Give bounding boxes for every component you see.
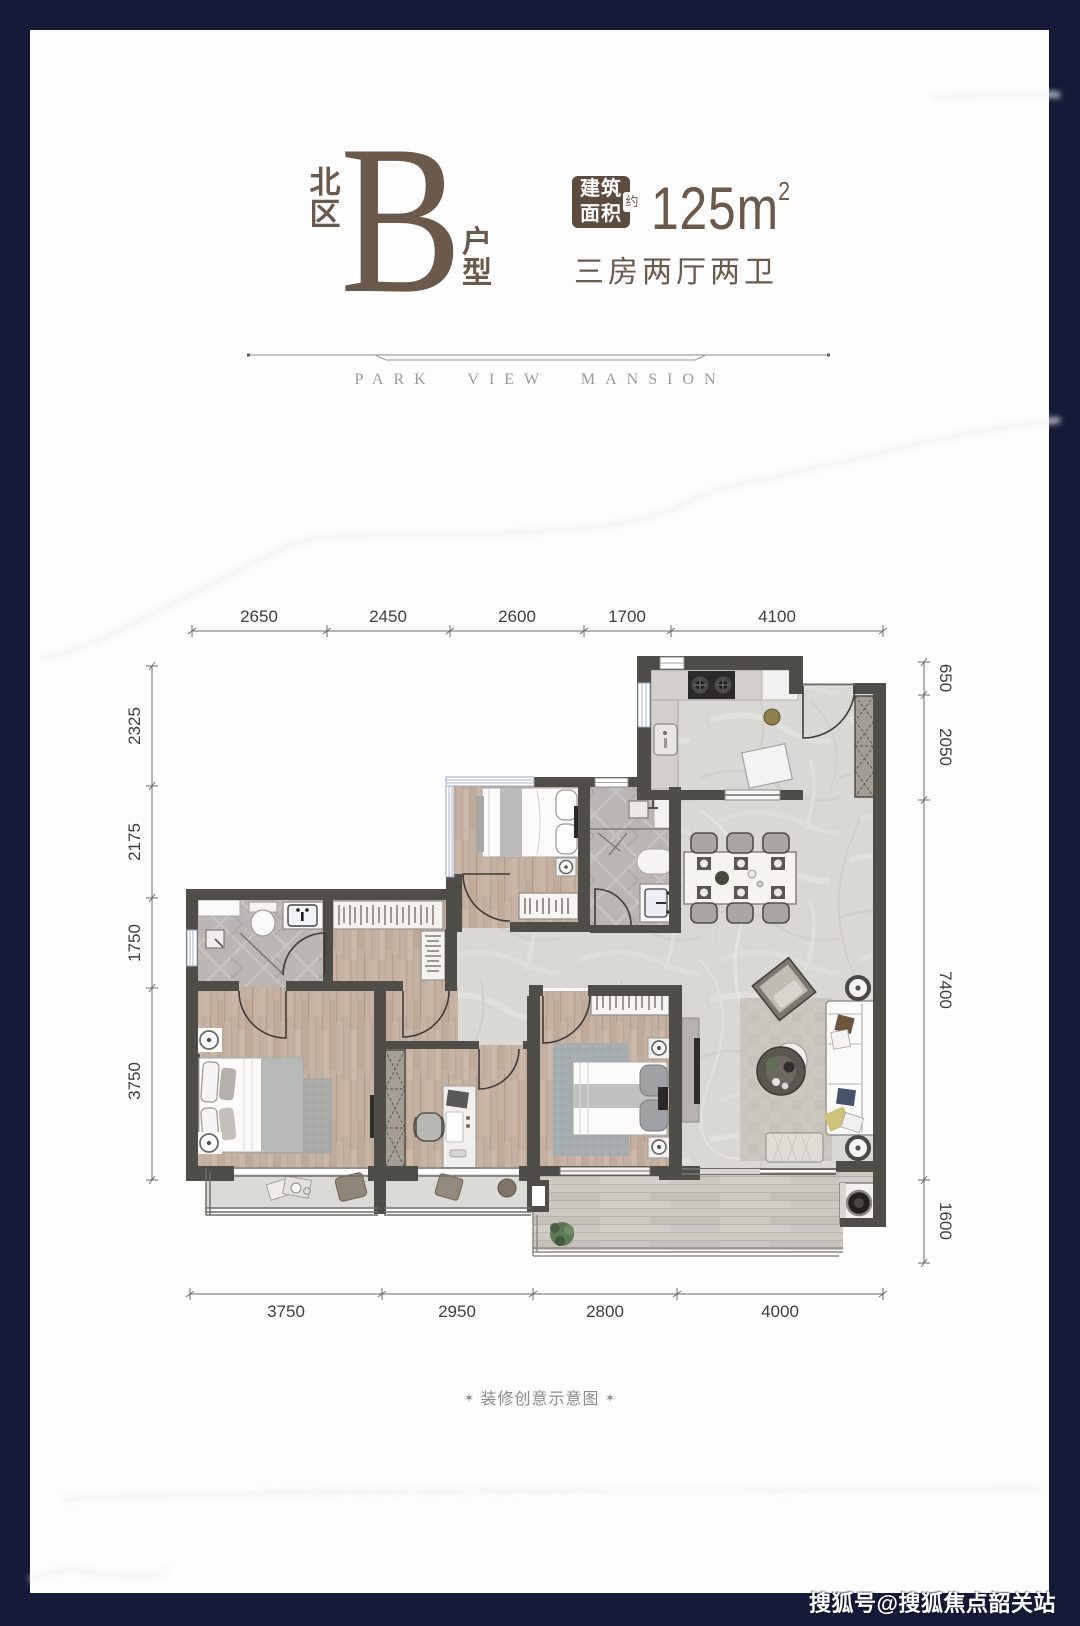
svg-text:2325: 2325 bbox=[125, 707, 144, 745]
svg-text:3750: 3750 bbox=[267, 1302, 305, 1321]
svg-text:1600: 1600 bbox=[936, 1202, 955, 1240]
svg-text:3750: 3750 bbox=[125, 1062, 144, 1100]
svg-text:2650: 2650 bbox=[240, 607, 278, 626]
svg-text:2450: 2450 bbox=[369, 607, 407, 626]
svg-text:4100: 4100 bbox=[758, 607, 796, 626]
svg-text:2050: 2050 bbox=[936, 728, 955, 766]
svg-text:2175: 2175 bbox=[125, 823, 144, 861]
svg-text:7400: 7400 bbox=[936, 971, 955, 1009]
svg-text:2800: 2800 bbox=[586, 1302, 624, 1321]
svg-text:4000: 4000 bbox=[761, 1302, 799, 1321]
svg-text:1750: 1750 bbox=[125, 924, 144, 962]
svg-text:650: 650 bbox=[936, 664, 955, 692]
svg-text:1700: 1700 bbox=[608, 607, 646, 626]
svg-text:2600: 2600 bbox=[498, 607, 536, 626]
svg-text:2950: 2950 bbox=[438, 1302, 476, 1321]
